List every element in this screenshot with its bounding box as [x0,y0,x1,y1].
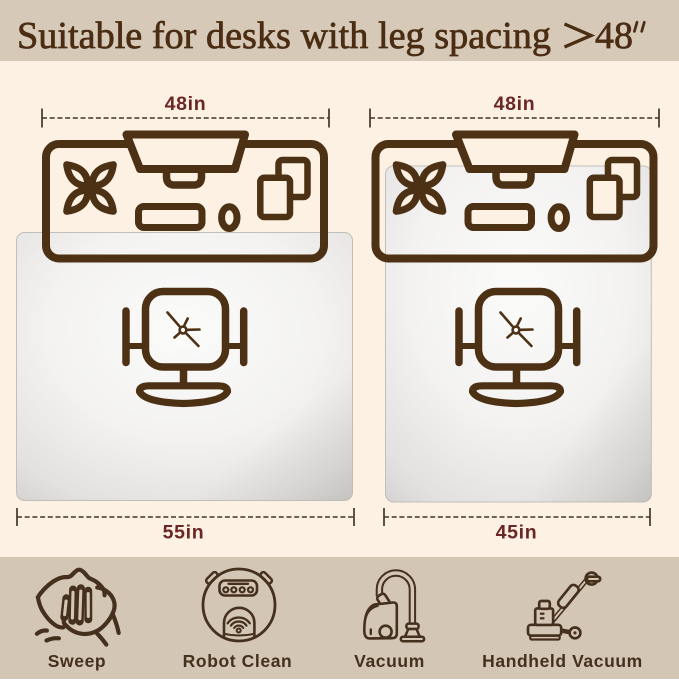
svg-text:55in: 55in [163,522,205,544]
svg-text:48: 48 [595,15,633,57]
svg-text:48in: 48in [494,93,536,115]
svg-text:48in: 48in [165,93,207,115]
svg-text:45in: 45in [496,522,538,544]
svg-text:Sweep: Sweep [48,651,106,671]
svg-text:Suitable for desks with leg sp: Suitable for desks with leg spacing [17,15,551,57]
svg-text:Handheld Vacuum: Handheld Vacuum [482,651,643,671]
svg-text:Robot Clean: Robot Clean [183,651,293,671]
svg-text:Vacuum: Vacuum [354,651,425,671]
